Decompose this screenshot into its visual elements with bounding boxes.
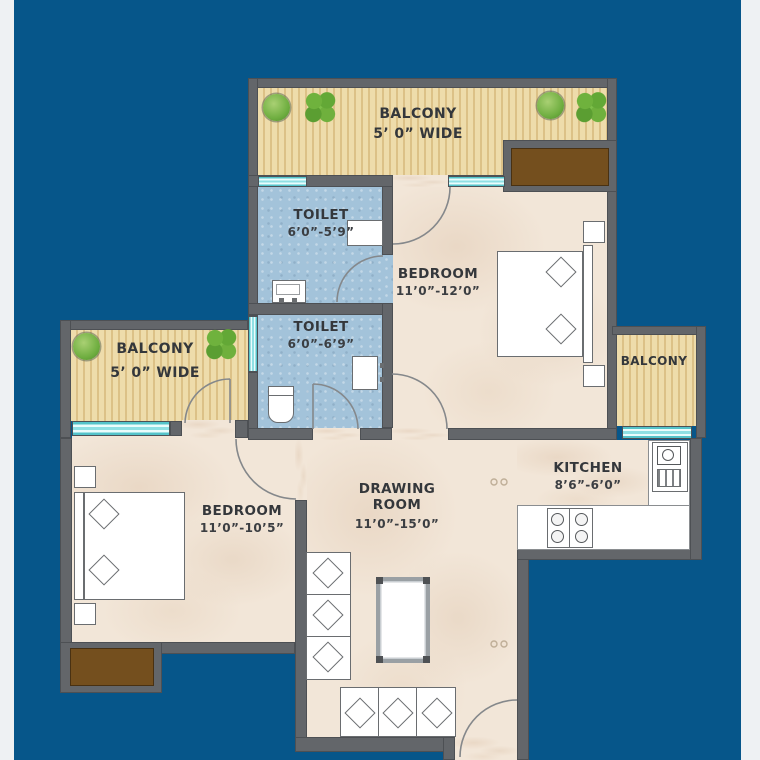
wall-segment [248, 303, 385, 315]
wall-segment [170, 421, 182, 436]
wall-segment [295, 737, 455, 752]
sink-tap-icon [662, 449, 674, 461]
wall-segment [248, 186, 258, 316]
wardrobe [70, 648, 154, 686]
sofa-cushion [344, 697, 375, 728]
wall-segment [248, 78, 258, 186]
wall-segment [690, 438, 702, 560]
room-dimension: 11’0”-10’5” [158, 520, 326, 537]
room-name: BEDROOM [158, 502, 326, 520]
room-label-drawing-room: DRAWING ROOM 11’0”-15’0” [330, 481, 464, 533]
kitchen-sink [652, 442, 688, 492]
basin-dot [380, 363, 384, 368]
wall-segment [360, 428, 392, 440]
wall-segment [517, 552, 529, 760]
plant-bush-icon [537, 92, 564, 119]
basin-dot [292, 298, 297, 302]
room-name: KITCHEN [522, 459, 654, 477]
room-name: BEDROOM [368, 265, 508, 283]
nightstand [74, 466, 96, 488]
wall-segment [607, 78, 617, 148]
room-dimension: 11’0”-12’0” [368, 283, 508, 300]
sofa-cushion [312, 599, 343, 630]
stove [547, 508, 593, 548]
pillow [545, 313, 576, 344]
plant-bush-icon [263, 94, 290, 121]
wall-segment [248, 78, 617, 88]
sofa-cushion [312, 557, 343, 588]
basin-inner [276, 284, 300, 295]
room-dimension: 6’0”-6’9” [258, 336, 384, 353]
room-label-bedroom-top: BEDROOM 11’0”-12’0” [368, 265, 508, 300]
nightstand [74, 603, 96, 625]
wall-segment [248, 428, 313, 440]
window [72, 421, 170, 436]
room-name: TOILET [258, 318, 384, 336]
wall-segment [443, 737, 455, 760]
room-dimension: 5’ 0” WIDE [70, 363, 240, 383]
sofa-cushion [421, 697, 452, 728]
balcony-right-floor [617, 335, 696, 426]
room-label-bedroom-left: BEDROOM 11’0”-10’5” [158, 502, 326, 537]
window [248, 316, 258, 372]
room-label-balcony-right: BALCONY [613, 353, 695, 369]
pillow [545, 256, 576, 287]
headboard [74, 492, 84, 600]
pillow [88, 498, 119, 529]
room-dimension: 11’0”-15’0” [330, 516, 464, 533]
room-dimension: 6’0”-5’9” [258, 224, 384, 241]
door-gap [182, 420, 235, 438]
room-name: DRAWING [330, 481, 464, 497]
wall-segment [60, 438, 72, 654]
door-gap [393, 175, 448, 187]
room-label-toilet-mid: TOILET 6’0”-6’9” [258, 318, 384, 353]
room-label-balcony-top: BALCONY 5’ 0” WIDE [298, 104, 538, 144]
coffee-table [376, 577, 430, 663]
window [258, 176, 307, 187]
window [448, 176, 505, 187]
sofa [306, 552, 351, 680]
wall-segment [235, 420, 248, 438]
nightstand [583, 365, 605, 387]
room-dimension: 8’6”-6’0” [522, 477, 654, 494]
room-name: TOILET [258, 206, 384, 224]
sofa-cushion [382, 697, 413, 728]
toilet-wc [268, 386, 294, 423]
entry-corridor-floor [455, 737, 517, 760]
washbasin [272, 280, 306, 303]
door-gap [295, 440, 307, 500]
room-name: BALCONY [298, 104, 538, 124]
floor-plan: BALCONY 5’ 0” WIDE TOILET 6’0”-5’9” TOIL… [0, 0, 760, 760]
room-label-balcony-left: BALCONY 5’ 0” WIDE [70, 339, 240, 383]
sofa-cushion [312, 641, 343, 672]
nightstand [583, 221, 605, 243]
headboard [583, 245, 593, 363]
drainboard-icon [657, 469, 681, 487]
basin-dot [279, 298, 284, 302]
wall-segment [448, 428, 617, 440]
pillow [88, 554, 119, 585]
door-gap [313, 428, 360, 440]
wall-segment [696, 326, 706, 438]
room-name: BALCONY [613, 353, 695, 369]
room-label-kitchen: KITCHEN 8’6”-6’0” [522, 459, 654, 494]
kitchen-counter [517, 505, 690, 550]
window [622, 426, 692, 439]
wardrobe [511, 148, 609, 186]
door-gap [392, 428, 448, 440]
bed [497, 251, 583, 357]
washbasin [352, 356, 378, 390]
wall-segment [612, 326, 706, 335]
room-name: ROOM [330, 497, 464, 513]
plant-clover-icon [576, 92, 607, 123]
room-label-toilet-top: TOILET 6’0”-5’9” [258, 206, 384, 241]
room-dimension: 5’ 0” WIDE [298, 124, 538, 144]
room-name: BALCONY [70, 339, 240, 359]
basin-dot [380, 377, 384, 382]
sofa [340, 687, 456, 737]
